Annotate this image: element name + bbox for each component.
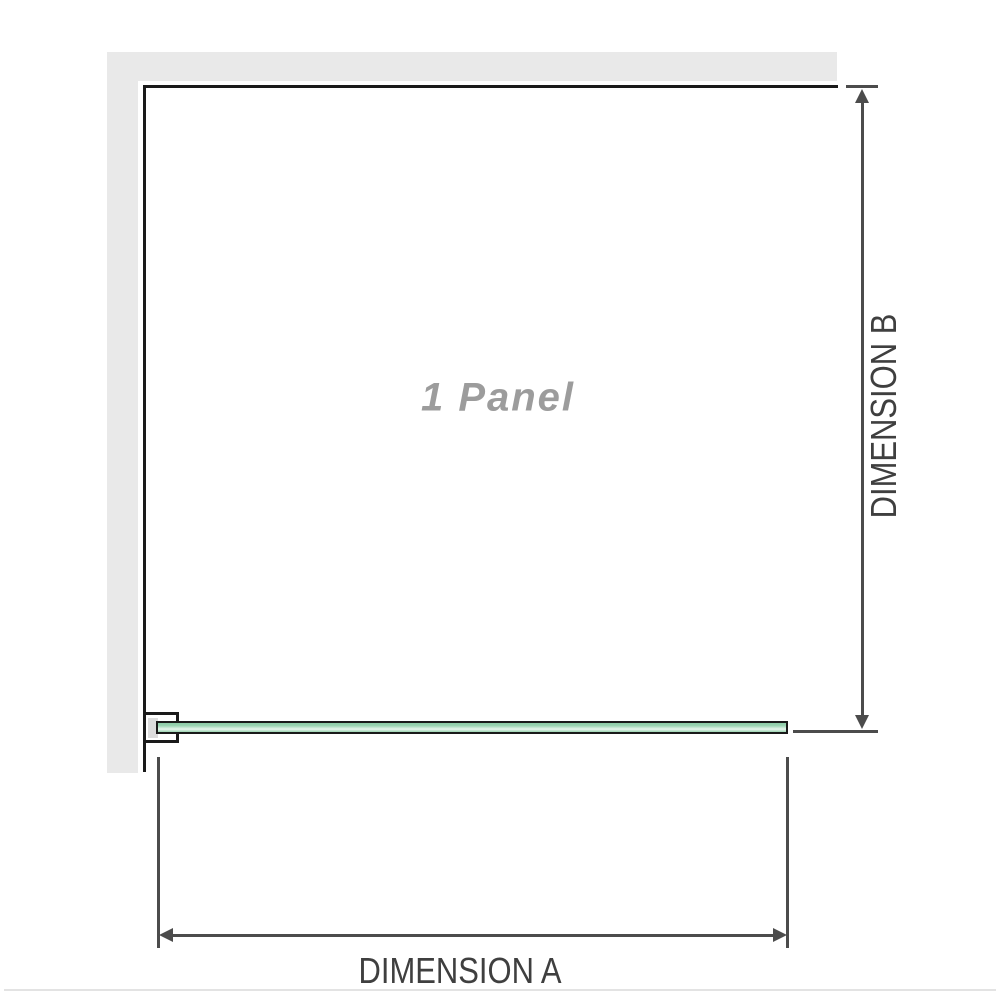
bottom-divider [4,989,996,991]
dimension-a-label: DIMENSION A [358,950,561,992]
dimension-a-extension-left [157,757,160,948]
wall-top [107,52,837,81]
arrow-up-icon [855,89,869,103]
arrow-down-icon [855,715,869,729]
wall-edge-left [143,85,146,772]
dimension-a-extension-right [786,757,789,948]
wall-edge-top [143,85,838,88]
dimension-b-label: DIMENSION B [863,314,905,519]
wall-left [107,52,138,773]
arrow-right-icon [773,928,787,942]
panel-label: 1 Panel [421,376,575,421]
dimension-a-line [168,934,778,937]
arrow-left-icon [159,928,173,942]
panel-dimension-diagram: 1 Panel DIMENSION B DIMENSION A [0,0,1000,1000]
glass-panel [156,721,788,734]
dimension-b-tick-bottom [793,730,878,733]
dimension-b-tick-top [846,85,878,88]
